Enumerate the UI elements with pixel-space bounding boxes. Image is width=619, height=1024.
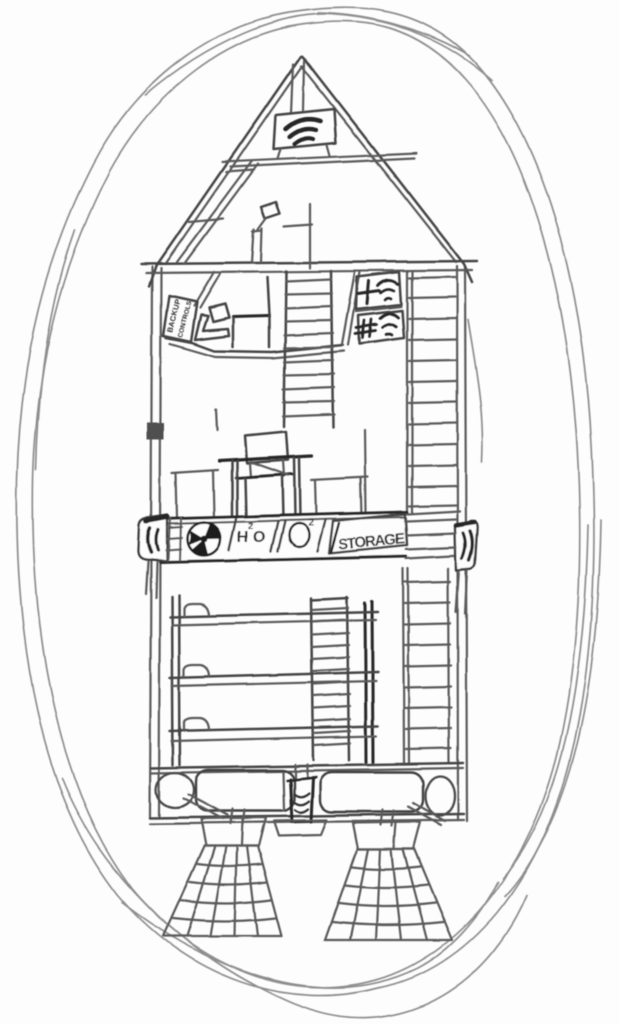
svg-text:H: H (237, 529, 249, 546)
svg-text:O: O (253, 529, 265, 546)
svg-text:2: 2 (308, 518, 314, 529)
